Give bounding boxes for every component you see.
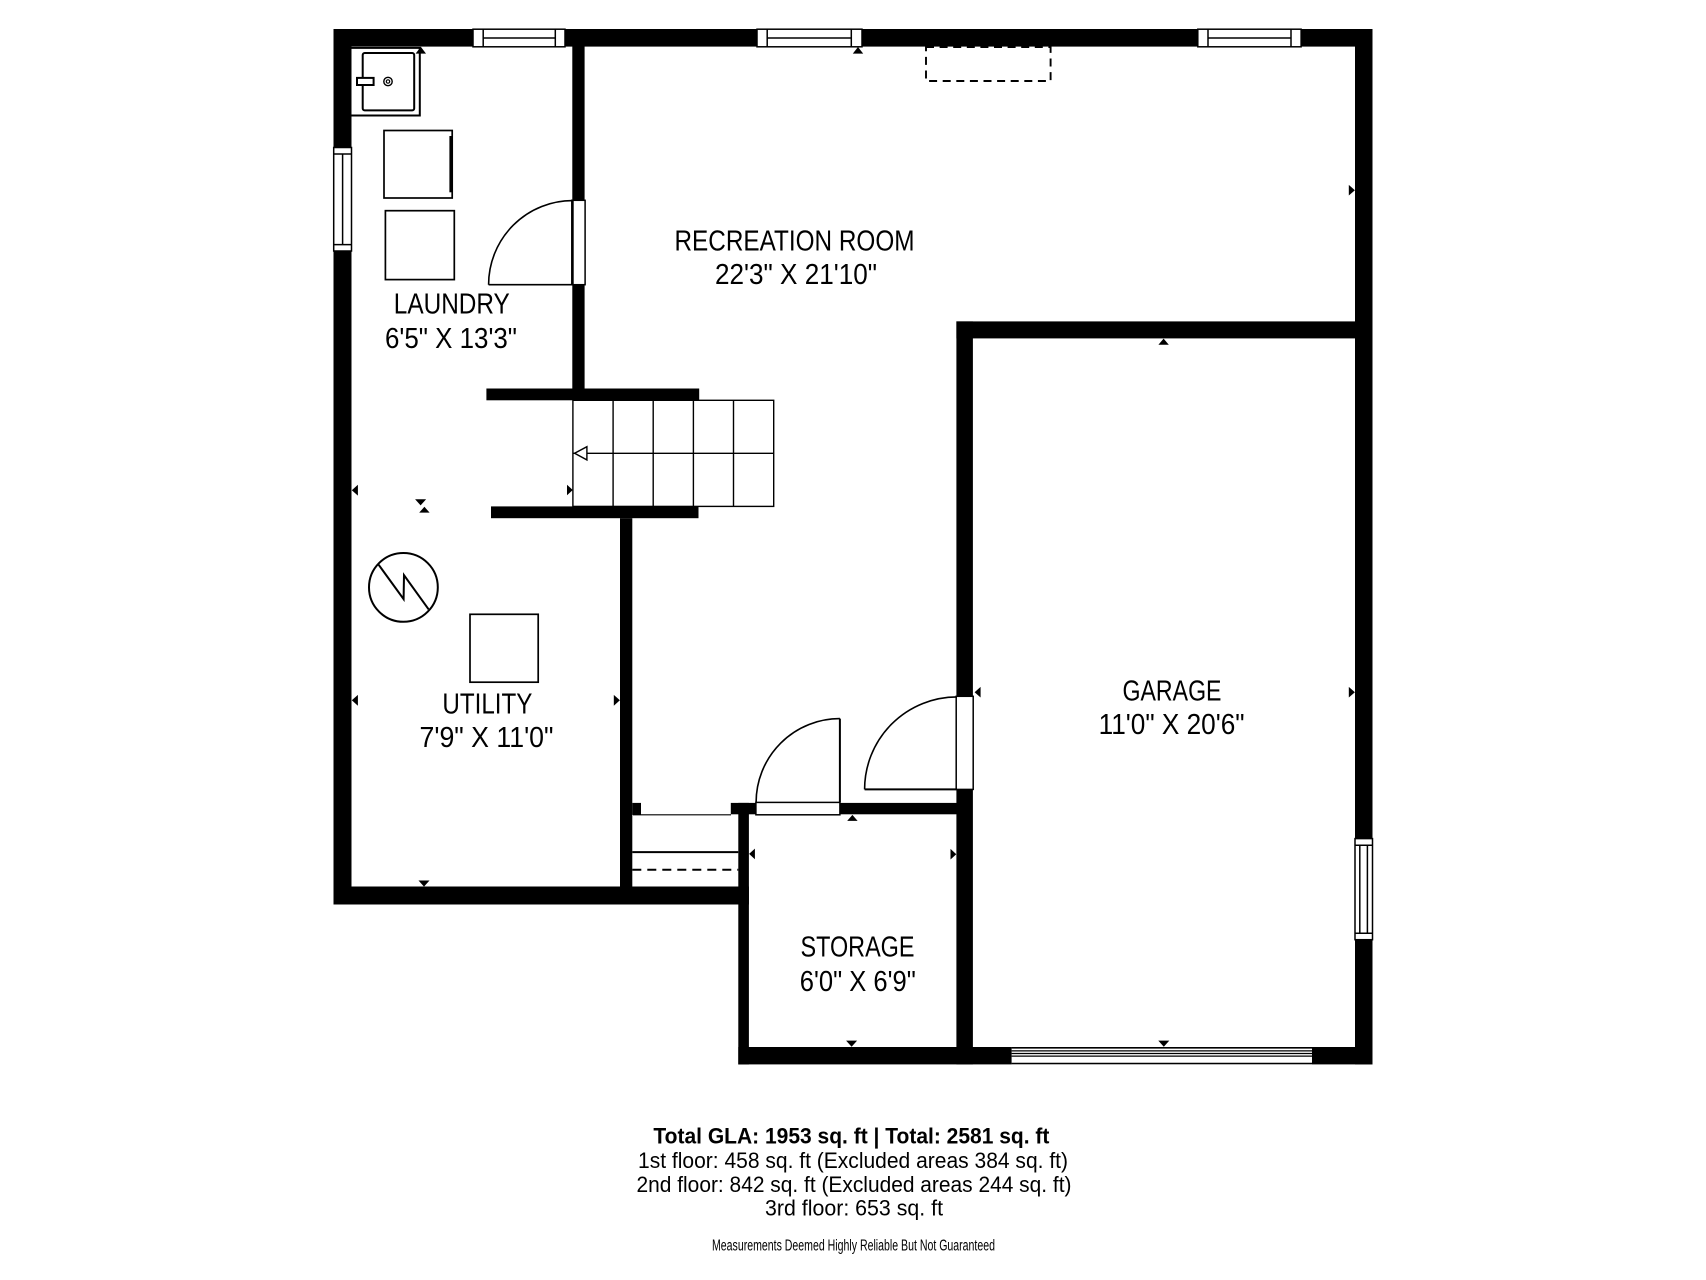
svg-text:2nd floor: 842 sq. ft (Exclude: 2nd floor: 842 sq. ft (Excluded areas 24… xyxy=(637,1172,1072,1197)
svg-text:22'3" X 21'10": 22'3" X 21'10" xyxy=(715,259,877,291)
svg-text:1st floor: 458 sq. ft (Exclude: 1st floor: 458 sq. ft (Excluded areas 38… xyxy=(638,1148,1068,1173)
svg-text:GARAGE: GARAGE xyxy=(1123,675,1222,707)
svg-text:7'9" X 11'0": 7'9" X 11'0" xyxy=(420,722,554,754)
svg-text:UTILITY: UTILITY xyxy=(442,689,532,721)
svg-text:6'0" X 6'9": 6'0" X 6'9" xyxy=(800,966,916,998)
svg-text:LAUNDRY: LAUNDRY xyxy=(394,289,510,321)
svg-text:STORAGE: STORAGE xyxy=(801,932,915,964)
svg-text:11'0" X 20'6": 11'0" X 20'6" xyxy=(1099,709,1245,741)
svg-text:6'5" X 13'3": 6'5" X 13'3" xyxy=(385,323,517,355)
svg-text:Measurements Deemed Highly Rel: Measurements Deemed Highly Reliable But … xyxy=(712,1238,995,1255)
svg-text:Total GLA: 1953 sq. ft | Total: Total GLA: 1953 sq. ft | Total: 2581 sq.… xyxy=(653,1124,1050,1149)
svg-text:3rd floor: 653 sq. ft: 3rd floor: 653 sq. ft xyxy=(765,1196,943,1221)
svg-text:RECREATION ROOM: RECREATION ROOM xyxy=(675,226,915,258)
